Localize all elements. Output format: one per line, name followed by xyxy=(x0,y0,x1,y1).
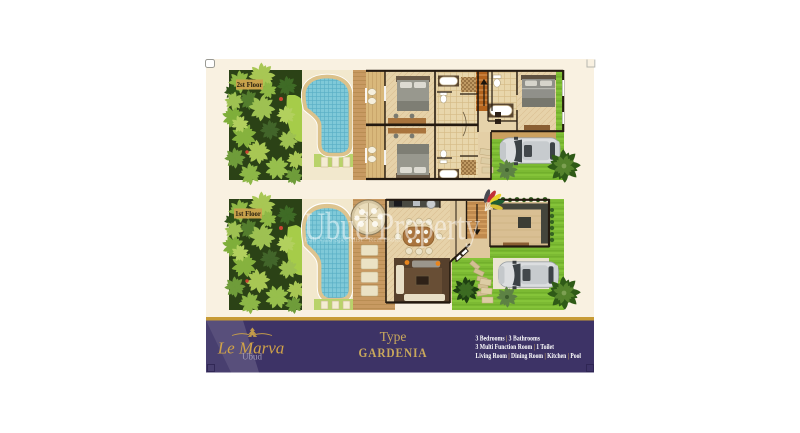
svg-text:3 Bedrooms | 3 Bathrooms: 3 Bedrooms | 3 Bathrooms xyxy=(476,335,541,342)
svg-text:3 Multi Function Room | 1 Toil: 3 Multi Function Room | 1 Toilet xyxy=(476,344,555,351)
svg-text:GARDENIA: GARDENIA xyxy=(359,346,428,360)
svg-text:2st Floor: 2st Floor xyxy=(237,82,263,89)
svg-text:Ubud: Ubud xyxy=(242,352,262,362)
svg-text:Living Room | Dining Room | Ki: Living Room | Dining Room | Kitchen | Po… xyxy=(476,353,582,360)
svg-text:Bali Villa Specialist - Real: Bali Villa Specialist - Real Estate xyxy=(305,238,402,244)
svg-text:Type: Type xyxy=(380,329,407,344)
svg-text:1st Floor: 1st Floor xyxy=(235,211,261,218)
